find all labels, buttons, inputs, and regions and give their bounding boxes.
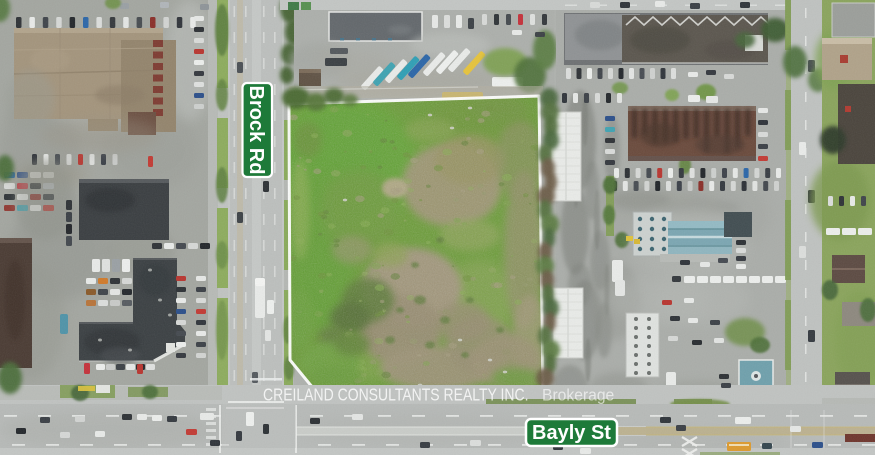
svg-text:Brock Rd: Brock Rd: [245, 86, 267, 175]
svg-text:CREILAND CONSULTANTS REALTY IN: CREILAND CONSULTANTS REALTY INC.: [263, 386, 528, 405]
svg-text:Bayly St: Bayly St: [532, 422, 611, 444]
svg-text:Brokerage: Brokerage: [542, 386, 614, 404]
